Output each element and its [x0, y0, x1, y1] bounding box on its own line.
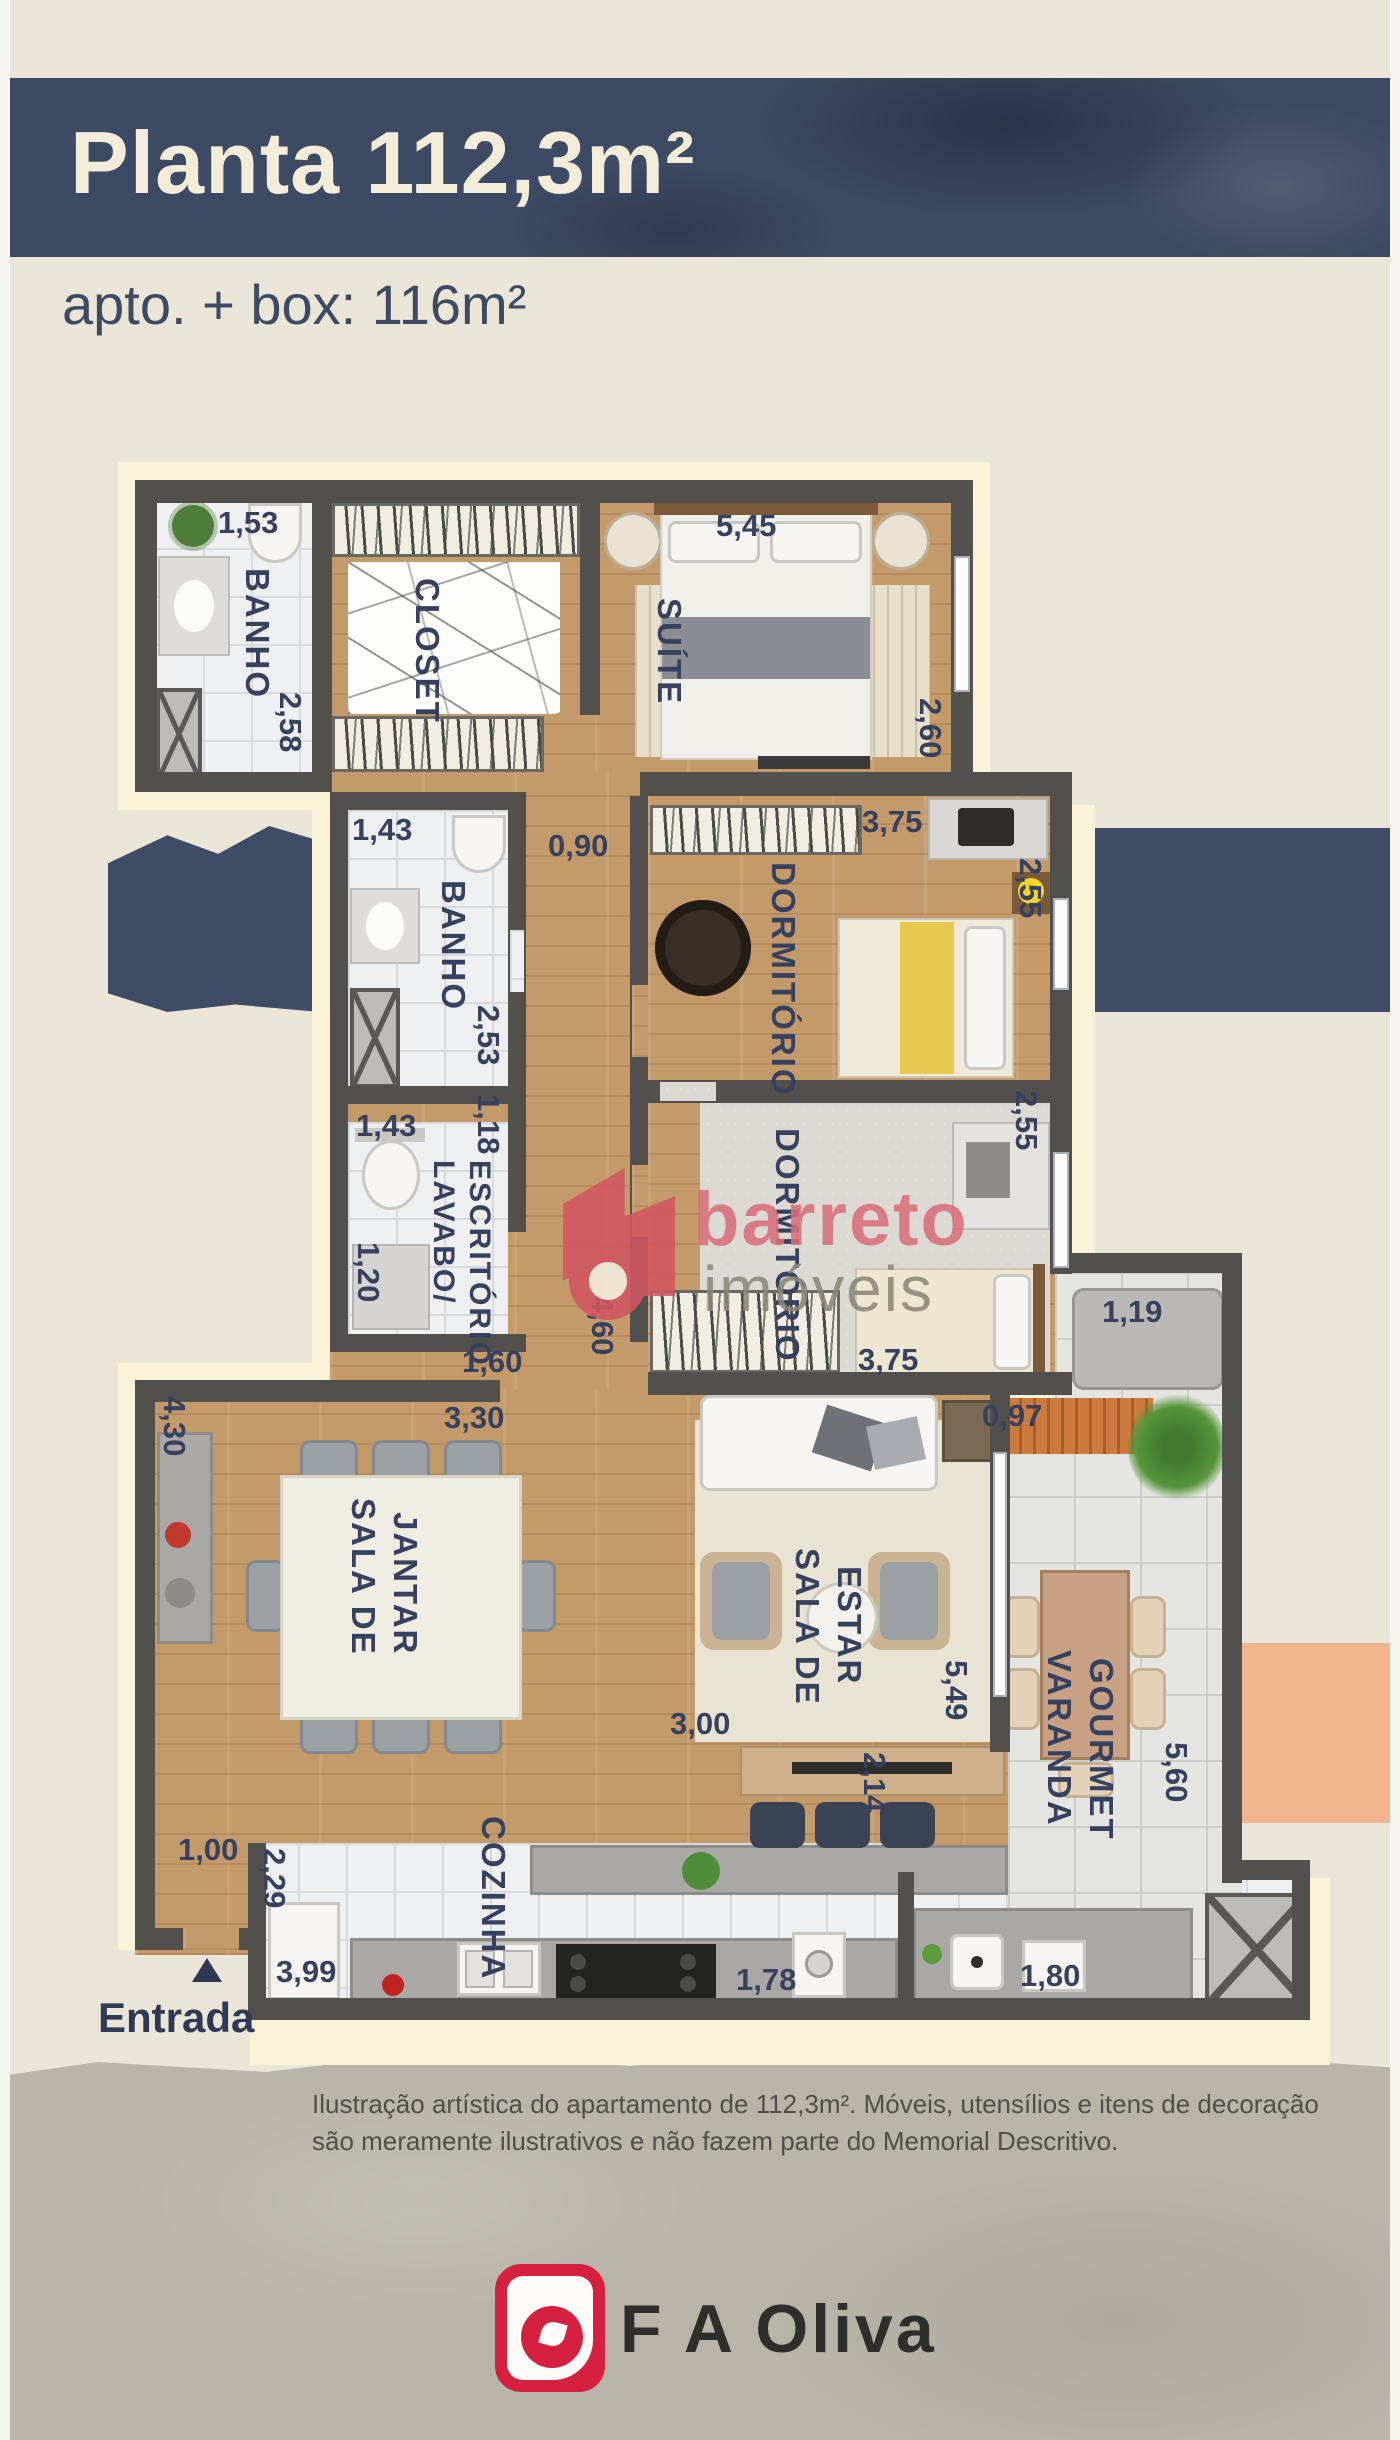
watermark-word2: imóveis	[703, 1252, 934, 1326]
varanda-plant	[1128, 1392, 1226, 1502]
wall	[640, 772, 1072, 796]
room-label-dormitorio1: DORMITÓRIO	[764, 862, 802, 1096]
fire-extinguisher-icon	[382, 1974, 404, 1996]
dim-cozinha-w2: 1,78	[736, 1962, 796, 1998]
wall	[312, 500, 332, 774]
room-label-varanda-line2: GOURMET	[1082, 1658, 1120, 1841]
room-label-estar-line1: SALA DE	[788, 1548, 826, 1706]
dim-cozinha-wall: 1,00	[178, 1832, 238, 1868]
dim-dorm2-w: 3,75	[858, 1342, 918, 1378]
shower-box-banho-social	[350, 988, 400, 1088]
window-dorm1	[1053, 898, 1069, 990]
fa-oliva-logo-icon	[495, 2264, 605, 2392]
dorm1-desk	[928, 798, 1048, 860]
wall	[1292, 1878, 1310, 2008]
jantar-bowl	[165, 1578, 195, 1608]
dim-cozinha-h: 2,29	[256, 1848, 292, 1908]
dim-banho-social-h: 2,53	[470, 1005, 506, 1065]
plant-icon	[172, 505, 214, 547]
sink-bowl2	[366, 902, 404, 950]
service-sink	[950, 1934, 1004, 1990]
kitchen-island	[530, 1845, 1008, 1895]
varanda-chair	[1130, 1596, 1166, 1658]
room-label-lavabo-line1: LAVABO/	[426, 1160, 460, 1305]
closet-wardrobe-bottom	[332, 716, 544, 772]
page-title: Planta 112,3m²	[70, 112, 695, 214]
kitchen-dishwasher	[792, 1932, 846, 1998]
entrance-label: Entrada	[98, 1994, 254, 2042]
dorm1-monitor	[958, 808, 1014, 846]
dim-hall-w: 0,90	[548, 828, 608, 864]
door-opening	[660, 1082, 716, 1101]
dim-cozinha-passage: 2,14	[856, 1752, 892, 1812]
dim-dorm1-h: 2,55	[1012, 858, 1048, 918]
room-label-estar-line2: ESTAR	[830, 1566, 868, 1685]
window-estar-varanda	[993, 1452, 1007, 1697]
closet-rug	[348, 562, 560, 714]
wall	[135, 1380, 155, 1950]
dorm1-wardrobe	[650, 805, 862, 855]
drain	[971, 1956, 983, 1968]
burner	[680, 1954, 696, 1970]
title-banner: Planta 112,3m²	[10, 78, 1390, 257]
room-label-jantar-line1: SALA DE	[344, 1498, 382, 1656]
wall	[135, 772, 332, 792]
kitchen-stool	[750, 1802, 805, 1848]
door-opening	[510, 930, 524, 992]
dim-dorm1-w: 3,75	[862, 804, 922, 840]
armchair-seat	[712, 1562, 770, 1640]
kitchen-cooktop	[556, 1944, 716, 2000]
toilet-banho-social	[452, 815, 506, 873]
entrance-door-opening	[183, 1928, 239, 1950]
wall	[1222, 1253, 1242, 1883]
logo-page-shape	[507, 2276, 593, 2380]
jantar-red-vase	[165, 1522, 191, 1548]
right-border	[1390, 0, 1400, 2440]
toilet-lavabo	[362, 1140, 420, 1210]
door-opening	[632, 985, 648, 1057]
dim-dorm2-h: 2,55	[1008, 1090, 1044, 1150]
varanda-chair	[1130, 1668, 1166, 1730]
shower-box-banho-suite	[156, 688, 202, 780]
dorm1-round-chair	[655, 900, 751, 996]
dim-lavabo-w: 1,43	[356, 1108, 416, 1144]
wall	[1055, 1253, 1242, 1273]
estar-armchair-right	[868, 1552, 950, 1650]
dim-hall-span: 3,30	[444, 1400, 504, 1436]
watermark: barreto imóveis	[555, 1150, 1075, 1340]
service-plant-icon	[922, 1944, 942, 1964]
suite-nightstand-right	[872, 512, 930, 570]
suite-tv-console	[758, 756, 870, 769]
wall	[135, 480, 157, 792]
dorm1-yellow-blanket	[900, 922, 954, 1074]
room-label-cozinha: COZINHA	[474, 1816, 512, 1980]
dining-chair	[516, 1560, 556, 1632]
dim-banho-suite-w: 1,53	[218, 505, 278, 541]
disclaimer-line1: Ilustração artística do apartamento de 1…	[312, 2086, 1319, 2123]
entrance-arrow-icon	[192, 1958, 222, 1982]
sofa-cushion-grey	[866, 1416, 926, 1470]
window-suite	[954, 556, 970, 692]
leaf-icon	[538, 2319, 567, 2348]
wall	[1222, 1860, 1310, 1880]
suite-nightstand-left	[604, 512, 662, 570]
estar-sofa	[700, 1395, 938, 1491]
burner	[570, 1976, 586, 1992]
dim-hall-opening: 1,60	[462, 1344, 522, 1380]
dorm1-bed	[838, 918, 1014, 1078]
brand-name: F A Oliva	[620, 2290, 937, 2368]
dim-jantar-h: 4,30	[156, 1396, 192, 1456]
room-label-varanda-line1: VARANDA	[1040, 1650, 1078, 1827]
burner	[680, 1976, 696, 1992]
kitchen-plant-icon	[682, 1852, 720, 1890]
armchair-seat	[880, 1562, 938, 1640]
wall	[135, 480, 973, 503]
room-label-suite: SUÍTE	[650, 598, 688, 705]
room-label-jantar-line2: JANTAR	[386, 1512, 424, 1655]
room-label-banho-social: BANHO	[434, 880, 472, 1011]
dim-suite-h: 2,60	[912, 698, 948, 758]
wall	[330, 792, 348, 1104]
dorm1-pillow	[964, 926, 1006, 1070]
dim-banho-suite-h: 2,58	[272, 692, 308, 752]
sink-counter-banho-suite	[158, 556, 230, 656]
room-label-closet: CLOSET	[408, 578, 446, 724]
disclaimer: Ilustração artística do apartamento de 1…	[312, 2086, 1319, 2160]
dim-varanda-w: 0,97	[982, 1398, 1042, 1434]
left-border	[0, 0, 10, 2440]
watermark-logo-circle	[569, 1242, 647, 1320]
dim-varanda-h2: 5,60	[1158, 1742, 1194, 1802]
burner	[570, 1954, 586, 1970]
suite-blanket	[662, 617, 870, 679]
wall	[580, 500, 600, 715]
estar-armchair-left	[700, 1552, 782, 1650]
watermark-word1: barreto	[693, 1176, 969, 1263]
logo-circle	[521, 2306, 583, 2368]
dim-servico-w: 1,80	[1020, 1958, 1080, 1994]
wall	[330, 1104, 348, 1352]
dim-cozinha-w: 3,99	[276, 1954, 336, 1990]
suite-pillow-right	[770, 521, 862, 563]
wall	[330, 792, 526, 810]
floorplan-page: Planta 112,3m² apto. + box: 116m²	[0, 0, 1400, 2440]
page-subtitle: apto. + box: 116m²	[62, 272, 526, 337]
wall	[898, 1872, 914, 2012]
dim-estar-w: 3,00	[670, 1706, 730, 1742]
room-label-banho-suite: BANHO	[238, 568, 276, 699]
wall	[508, 1104, 526, 1232]
disclaimer-line2: são meramente ilustrativos e não fazem p…	[312, 2123, 1319, 2160]
dim-varanda-h: 5,49	[938, 1660, 974, 1720]
wall	[248, 1998, 1310, 2020]
dishwasher-door	[805, 1950, 833, 1978]
dim-lavabo-h: 1,18	[470, 1094, 506, 1154]
dim-suite-w: 5,45	[716, 508, 776, 544]
closet-wardrobe-top	[332, 503, 580, 557]
room-label-lavabo-line2: ESCRITÓRIO	[462, 1160, 496, 1367]
dim-varanda-alcove: 1,19	[1102, 1294, 1162, 1330]
dim-banho-social-w: 1,43	[352, 812, 412, 848]
dim-lavabo-depth: 1,20	[350, 1242, 386, 1302]
sink-banho-social	[350, 888, 420, 964]
sink-bowl	[174, 580, 214, 632]
